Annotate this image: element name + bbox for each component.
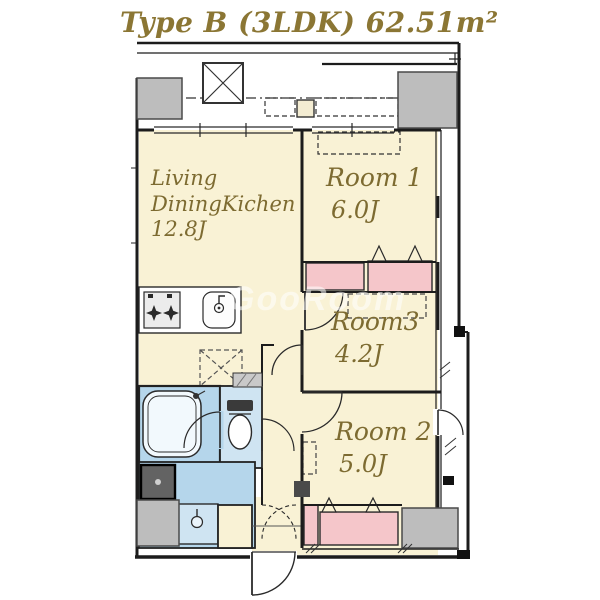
room3-size: 4.2J [335,340,383,369]
watermark: GooRoom [228,280,406,319]
eave-outline [265,98,295,116]
column-bottom-right [402,508,458,548]
column-bottom-left [137,500,179,546]
duct-box [297,100,314,117]
plan-title: Type B (3LDK) 62.51m² [120,6,476,39]
kitchen-counter [139,287,241,333]
column-top-right [398,72,457,128]
toilet-icon [227,400,253,449]
room2-name: Room 2 [335,417,431,448]
washer-pan-icon [141,465,175,499]
room2-size: 5.0J [339,450,387,479]
closet-room2-side [304,505,318,545]
hall-pillar [294,481,310,497]
wall-stub [233,373,262,387]
shoe-closet [218,505,252,548]
washbasin-icon [176,504,218,544]
closet-room2 [320,512,398,545]
bathroom [139,386,220,464]
room1-size: 6.0J [331,196,379,225]
ldk-size: 12.8J [151,217,295,243]
room-label-ldk: Living DiningKichen 12.8J [151,166,295,243]
room1-name: Room 1 [326,163,422,194]
floorplan: Type B (3LDK) 62.51m² Living DiningKiche… [0,0,600,600]
eave-outline [316,98,398,116]
ldk-name-line1: Living [151,166,295,192]
bathtub-icon [143,391,201,457]
ldk-name-line2: DiningKichen [151,192,295,218]
escape-hatch-icon [203,63,243,103]
stove-icon [144,292,180,328]
toilet-room [220,386,262,468]
column-top-left [137,78,182,119]
